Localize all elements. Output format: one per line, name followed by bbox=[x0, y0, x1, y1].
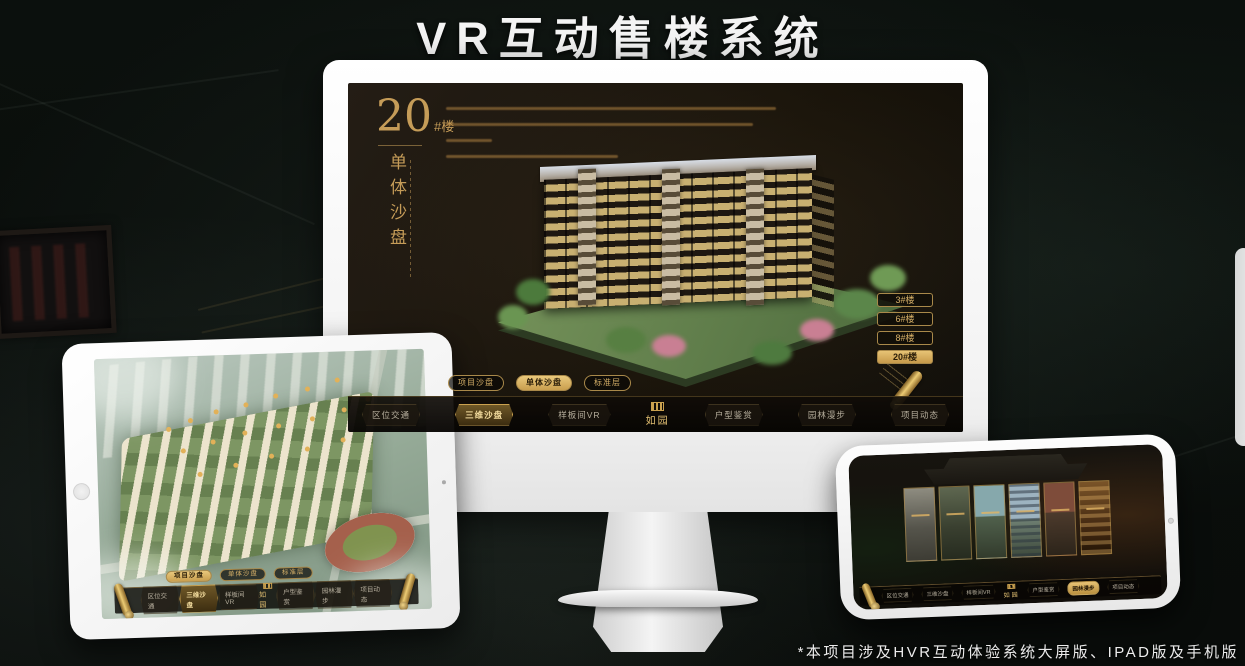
nav-item-showroom-vr[interactable]: 样板间VR bbox=[218, 584, 260, 610]
description-line bbox=[446, 155, 618, 158]
nav-item-3d-sandtable[interactable]: 三维沙盘 bbox=[921, 586, 954, 601]
tree bbox=[834, 289, 880, 319]
nav-item-project-news[interactable]: 项目动态 bbox=[891, 404, 949, 426]
background-device-edge bbox=[1235, 248, 1245, 446]
description-line bbox=[446, 107, 776, 110]
nav-scroll-handle-icon[interactable] bbox=[861, 581, 881, 609]
phone-screen: 区位交通 三维沙盘 样板间VR 如园 户型鉴赏 园林漫步 项目动态 bbox=[848, 444, 1168, 610]
brand-logo-text: 如园 bbox=[259, 590, 277, 611]
brand-logo-text: 如园 bbox=[1003, 589, 1019, 599]
tab-standard-floor[interactable]: 标准层 bbox=[274, 566, 313, 580]
description-line bbox=[446, 123, 753, 126]
building-bay bbox=[662, 169, 680, 306]
nav-item-unit-plans[interactable]: 户型鉴赏 bbox=[276, 581, 316, 610]
home-button[interactable] bbox=[73, 483, 91, 501]
brand-seal-icon bbox=[651, 402, 664, 411]
nav-item-3d-sandtable[interactable]: 三维沙盘 bbox=[455, 404, 513, 426]
floor-button-20[interactable]: 20#楼 bbox=[877, 350, 933, 364]
block-subtitle-en-decor bbox=[410, 157, 411, 277]
monitor-base bbox=[558, 590, 758, 607]
scene-gallery bbox=[903, 480, 1112, 562]
tree bbox=[516, 279, 550, 305]
nav-item-location[interactable]: 区位交通 bbox=[362, 404, 420, 426]
tablet-screen: 项目沙盘 单体沙盘 标准层 区位交通 三维沙盘 样板间VR 如园 户型鉴赏 园林… bbox=[94, 349, 432, 619]
scene-card[interactable] bbox=[1008, 483, 1042, 558]
building-model bbox=[544, 161, 812, 303]
tree bbox=[870, 265, 906, 291]
building-bay bbox=[746, 169, 764, 306]
block-number: 20 bbox=[376, 91, 432, 142]
brand-logo: 如园 bbox=[259, 583, 277, 611]
scene-card[interactable] bbox=[938, 485, 972, 560]
nav-item-project-news[interactable]: 项目动态 bbox=[353, 578, 393, 607]
floor-button-8[interactable]: 8#楼 bbox=[877, 331, 933, 345]
nav-item-showroom-vr[interactable]: 样板间VR bbox=[961, 585, 996, 600]
scroll-roll bbox=[398, 572, 416, 607]
scene-card[interactable] bbox=[1043, 481, 1077, 556]
nav-item-unit-plans[interactable]: 户型鉴赏 bbox=[1027, 582, 1060, 597]
main-navbar: 区位交通 三维沙盘 样板间VR 如园 户型鉴赏 园林漫步 项目动态 bbox=[348, 396, 963, 432]
tablet-device: 项目沙盘 单体沙盘 标准层 区位交通 三维沙盘 样板间VR 如园 户型鉴赏 园林… bbox=[61, 332, 460, 640]
tree bbox=[498, 305, 528, 329]
nav-item-garden-walk[interactable]: 园林漫步 bbox=[314, 580, 354, 609]
floor-selector: 3#楼 6#楼 8#楼 20#楼 bbox=[877, 293, 933, 364]
tab-single-sandtable[interactable]: 单体沙盘 bbox=[220, 567, 266, 581]
nav-item-project-news[interactable]: 项目动态 bbox=[1107, 579, 1140, 594]
nav-item-location[interactable]: 区位交通 bbox=[881, 588, 914, 603]
nav-item-unit-plans[interactable]: 户型鉴赏 bbox=[705, 404, 763, 426]
nav-item-3d-sandtable[interactable]: 三维沙盘 bbox=[179, 584, 219, 613]
building-bay bbox=[578, 169, 596, 306]
brand-logo-text: 如园 bbox=[646, 412, 670, 427]
pergola-silhouette bbox=[924, 453, 1088, 485]
flower-shrub bbox=[800, 319, 834, 341]
description-line bbox=[446, 139, 492, 142]
brand-logo: 如园 bbox=[1003, 583, 1020, 599]
nav-item-location[interactable]: 区位交通 bbox=[140, 585, 180, 614]
nav-item-garden-walk[interactable]: 园林漫步 bbox=[1067, 581, 1100, 596]
footnote-text: *本项目涉及HVR互动体验系统大屏版、IPAD版及手机版 bbox=[798, 641, 1239, 662]
block-heading: 20#楼 bbox=[376, 95, 454, 139]
scene-card[interactable] bbox=[903, 487, 937, 562]
nav-item-showroom-vr[interactable]: 样板间VR bbox=[548, 404, 610, 426]
floor-button-6[interactable]: 6#楼 bbox=[877, 312, 933, 326]
scroll-roll bbox=[861, 582, 878, 609]
page-title: VR互动售楼系统 bbox=[0, 2, 1245, 67]
brand-seal-icon bbox=[1007, 583, 1015, 588]
flower-shrub bbox=[652, 335, 686, 357]
tab-single-sandtable[interactable]: 单体沙盘 bbox=[516, 375, 572, 391]
block-subtitle: 单体沙盘 bbox=[384, 153, 409, 253]
view-tab-group: 项目沙盘 单体沙盘 标准层 bbox=[448, 375, 631, 391]
brand-logo: 如园 bbox=[646, 402, 670, 427]
monitor-stand bbox=[593, 512, 723, 652]
building-side-face bbox=[812, 174, 834, 307]
tab-project-sandtable[interactable]: 项目沙盘 bbox=[166, 569, 212, 583]
tree bbox=[752, 341, 792, 365]
scene-card[interactable] bbox=[1078, 480, 1112, 555]
background-plaque bbox=[0, 225, 117, 339]
nav-scroll-handle-icon[interactable] bbox=[113, 581, 136, 619]
scene-card[interactable] bbox=[973, 484, 1007, 559]
camera-dot-icon bbox=[1168, 518, 1174, 524]
floor-button-3[interactable]: 3#楼 bbox=[877, 293, 933, 307]
scroll-roll bbox=[113, 582, 133, 617]
heading-divider bbox=[378, 145, 422, 146]
camera-dot-icon bbox=[442, 480, 446, 484]
phone-device: 区位交通 三维沙盘 样板间VR 如园 户型鉴赏 园林漫步 项目动态 bbox=[835, 434, 1181, 621]
brand-seal-icon bbox=[263, 583, 272, 589]
nav-item-garden-walk[interactable]: 园林漫步 bbox=[798, 404, 856, 426]
tree bbox=[606, 327, 646, 353]
main-navbar: 区位交通 三维沙盘 样板间VR 如园 户型鉴赏 园林漫步 项目动态 bbox=[859, 575, 1162, 606]
tab-standard-floor[interactable]: 标准层 bbox=[584, 375, 631, 391]
tab-project-sandtable[interactable]: 项目沙盘 bbox=[448, 375, 504, 391]
promo-canvas: VR互动售楼系统 20#楼 单体沙盘 bbox=[0, 0, 1245, 666]
tablet-nav-area: 项目沙盘 单体沙盘 标准层 区位交通 三维沙盘 样板间VR 如园 户型鉴赏 园林… bbox=[114, 563, 419, 614]
